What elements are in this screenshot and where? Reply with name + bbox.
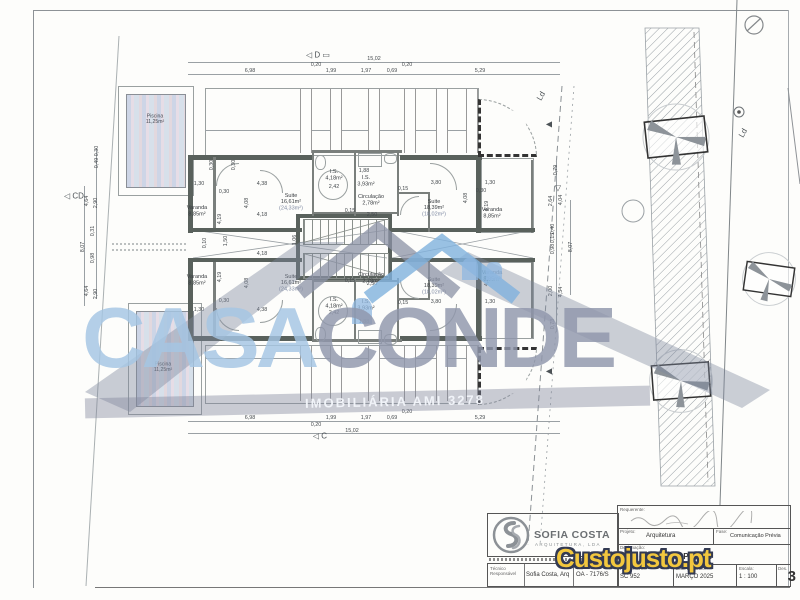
wall	[188, 228, 302, 232]
sheet-border-top	[33, 10, 788, 11]
dimension-label: 2,42	[329, 184, 340, 189]
sheet-number: 3	[788, 568, 796, 585]
requerente-row: Requerente:	[618, 506, 790, 529]
dimension-label: 8,07	[568, 242, 573, 253]
escala-label: Escala:	[739, 566, 754, 571]
watermark-window	[486, 262, 502, 280]
wc-fixture	[384, 153, 397, 164]
room-label: Varanda8,85m²	[187, 205, 207, 218]
survey-marker	[745, 16, 763, 34]
dimension-label: 15,02	[345, 428, 359, 433]
dimension-label: 0,79	[553, 165, 558, 176]
tree-symbol	[640, 101, 713, 174]
section-marker: Ld	[737, 127, 749, 139]
dimension-label: 1,30	[485, 180, 496, 185]
dimension-label: 2,64	[548, 196, 553, 207]
dimension-label: 4,08	[244, 278, 249, 289]
gate-swing	[478, 99, 537, 157]
site-circle	[622, 200, 644, 222]
dim-line	[188, 62, 560, 63]
dimension-label: 15,02	[367, 56, 381, 61]
tree-symbol	[739, 249, 799, 309]
escala-value: 1 : 100	[739, 574, 757, 580]
dimension-label: 0,98	[90, 253, 95, 264]
room-label: Circulação2,78m²	[358, 194, 384, 207]
dimension-label: 1,30	[194, 181, 205, 186]
sheet-border-left	[33, 10, 34, 588]
dimension-label: 0,49	[94, 158, 99, 169]
projeto-value: Arquitetura	[646, 533, 675, 539]
dimension-label: 4,08	[463, 193, 468, 204]
stair-wall	[296, 214, 300, 280]
dimension-label: 5,29	[475, 68, 486, 73]
dimension-label: 0,98	[550, 244, 555, 255]
sheet-border-bottom	[95, 587, 790, 588]
dimension-label: 0,15	[345, 278, 356, 283]
stair-flight	[303, 219, 389, 245]
section-marker: ◀	[546, 120, 552, 129]
dimension-label: 1,06	[292, 235, 297, 246]
dim-line	[188, 433, 560, 434]
dimension-label: 4,19	[217, 272, 222, 283]
tree-symbol	[648, 348, 715, 415]
pool-label: Piscina11,25m²	[146, 114, 164, 126]
dimension-label: 1,50	[223, 236, 228, 247]
room-label: Circulação2,78m²	[358, 272, 384, 285]
fase-value: Comunicação Prévia	[730, 533, 781, 539]
proc-value: SC 952	[620, 574, 640, 580]
partition	[354, 150, 356, 216]
dimension-label: 0,69	[387, 68, 398, 73]
dimension-label: 0,15	[345, 208, 356, 213]
custojusto-watermark: Custojusto.pt	[556, 543, 711, 574]
partition	[397, 192, 428, 194]
drawing-sheet: 15,026,980,201,991,970,690,205,296,980,2…	[0, 0, 800, 600]
section-marker: ◁ C	[313, 432, 327, 441]
wc-fixture	[315, 155, 326, 170]
terrace-column	[300, 89, 312, 153]
room-label: I.S.4,18m²	[325, 169, 342, 182]
section-marker: Ld	[535, 90, 547, 102]
dimension-label: 1,99	[326, 68, 337, 73]
firm-name: SOFIA COSTA	[534, 529, 610, 541]
watermark-wordmark: CASACONDE	[82, 295, 613, 380]
dimension-label: 0,30	[219, 189, 230, 194]
door-swing	[400, 196, 419, 215]
section-marker: ◁ CD	[64, 192, 84, 201]
dimension-label: 4,08	[244, 198, 249, 209]
dimension-label: 5,29	[475, 415, 486, 420]
dimension-label: 1,97	[361, 68, 372, 73]
requerente-signature	[626, 511, 786, 527]
terrace-column	[466, 89, 478, 153]
dimension-label: 0,20	[402, 62, 413, 67]
dimension-label: 1,88	[359, 168, 370, 173]
sink-fixture	[358, 153, 382, 167]
dimension-label: 1,97	[361, 415, 372, 420]
partition	[397, 150, 399, 216]
dimension-label: 6,98	[245, 415, 256, 420]
dim-line	[188, 74, 560, 75]
room-label: Varanda8,85m²	[482, 207, 502, 220]
watermark-casa: CASA	[82, 290, 315, 386]
dimension-label: 0,30	[231, 160, 236, 171]
dimension-label: 0,15	[550, 233, 555, 244]
terrace-column	[404, 89, 416, 153]
wall	[188, 155, 193, 233]
dimension-label: 4,04	[558, 195, 563, 206]
dimension-label: 0,30	[476, 188, 487, 193]
dimension-label: 1,99	[326, 415, 337, 420]
pool	[126, 94, 186, 188]
dimension-label: 0,15	[398, 186, 409, 191]
dimension-label: 2,50	[367, 212, 378, 217]
dim-line	[96, 148, 97, 298]
dimension-label: 4,19	[217, 214, 222, 225]
room-label: Suite18,39m²(18,02m²)	[422, 199, 446, 219]
dimension-label: 8,07	[80, 242, 85, 253]
wall	[390, 228, 535, 232]
dimension-label: 0,20	[311, 62, 322, 67]
room-label: I.S.3,93m²	[357, 175, 374, 188]
wall	[531, 160, 533, 233]
terrace-column	[368, 89, 380, 153]
dimension-label: 0,69	[387, 415, 398, 420]
sheet-border-right	[788, 10, 789, 588]
dimension-label: 4,64	[84, 196, 89, 207]
dimension-label: 4,18	[257, 251, 268, 256]
dimension-label: 4,18	[257, 212, 268, 217]
wall	[476, 158, 481, 233]
wall	[188, 258, 302, 262]
road-hatch-band	[645, 28, 715, 486]
wall	[400, 155, 482, 160]
terrace-column	[330, 89, 342, 153]
dimension-label: 3,80	[431, 180, 442, 185]
dimension-label: 0,30	[94, 146, 99, 157]
dimension-label: 0,10	[202, 238, 207, 249]
terrace-column	[436, 89, 448, 153]
dimension-label: 0,20	[311, 422, 322, 427]
tecnico-label: Técnico Responsável	[490, 566, 522, 576]
projeto-label: Projeto:	[620, 529, 636, 534]
sofia-costa-logo	[491, 515, 531, 555]
partition	[312, 150, 314, 216]
dimension-label: 4,38	[257, 181, 268, 186]
room-label: Varanda8,85m²	[187, 274, 207, 287]
desenho-label: Des.	[778, 566, 787, 571]
varanda-outline	[481, 158, 534, 233]
dimension-label: 0,30	[209, 160, 214, 171]
dimension-label: 0,31	[90, 226, 95, 237]
dimension-label: 6,98	[245, 68, 256, 73]
dim-line	[188, 421, 560, 422]
section-marker: ▽	[555, 184, 561, 193]
watermark-window	[462, 258, 478, 280]
fase-label: Fase:	[716, 529, 727, 534]
door-swing	[430, 163, 457, 190]
section-marker: ◁ D ▭	[306, 51, 330, 60]
room-label: Suite16,61m²(24,33m²)	[279, 193, 303, 213]
dimension-label: 2,90	[93, 198, 98, 209]
data-value: MARÇO 2025	[676, 574, 713, 580]
post-marker	[734, 107, 744, 117]
watermark-conde: CONDE	[315, 290, 613, 386]
